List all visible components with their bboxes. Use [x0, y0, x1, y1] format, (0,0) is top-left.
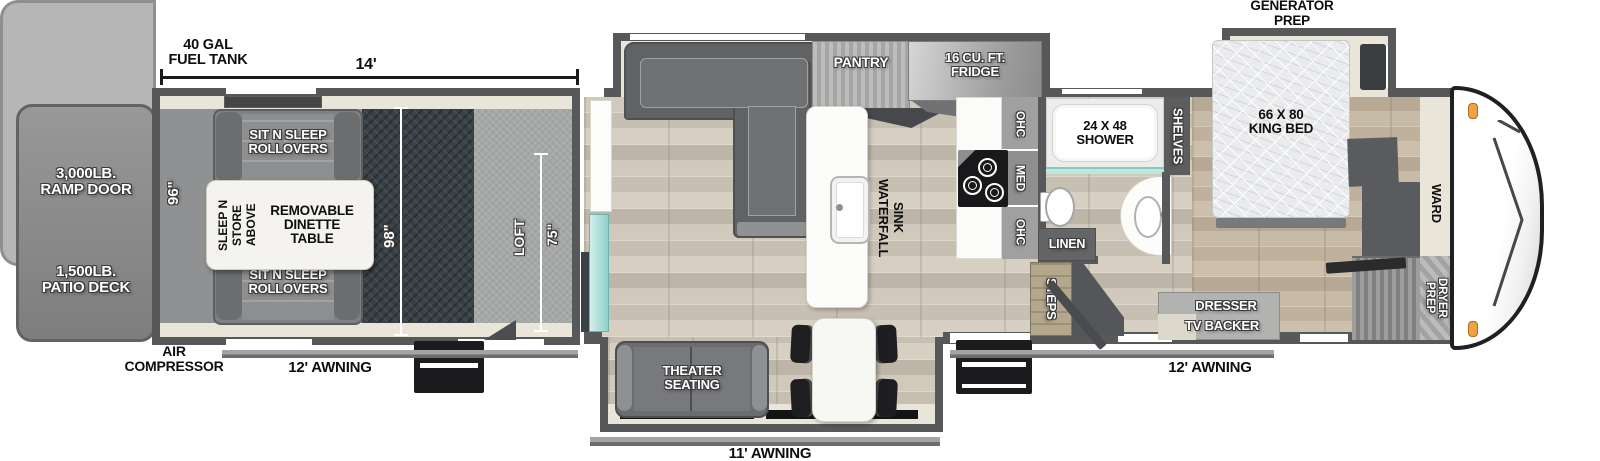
entry-steps-main-tread-2 [962, 384, 1026, 388]
king-bed-label: 66 X 80 KING BED [1222, 104, 1340, 140]
roof-vent [224, 96, 322, 108]
theater-slide-wall-right [935, 337, 943, 432]
fuel-tank-label: 40 GAL FUEL TANK [148, 36, 268, 70]
garage-carpet [362, 96, 474, 337]
dresser-label-2: TV BACKER [1164, 317, 1280, 334]
bottom-wall-window-2 [1300, 334, 1348, 342]
wd-line3: PREP [1424, 258, 1436, 338]
fuel-tank-line2: FUEL TANK [168, 53, 247, 68]
ramp-door-label: 3,000LB. RAMP DOOR [18, 160, 154, 204]
bed-base [1216, 218, 1346, 228]
dinette-line2: DINETTE [284, 218, 340, 232]
dim75-line [540, 154, 542, 332]
garage-passage-dark [581, 252, 589, 332]
loft-label: LOFT [511, 214, 529, 262]
sofa-slide-wall-left [613, 33, 621, 97]
sleep-n-store-line1: SLEEP N STORE [216, 178, 244, 272]
vanity-sink [1134, 196, 1162, 238]
awning-left-label: 12' AWNING [268, 360, 392, 376]
waterfall-sink-label: WATERFALL SINK [876, 168, 910, 268]
burner-icon [978, 158, 997, 177]
burner-icon [985, 183, 1004, 202]
linen-label: LINEN [1049, 238, 1086, 251]
fridge-line2: FRIDGE [951, 65, 999, 79]
sectional-sofa-back-seat [640, 58, 808, 108]
bed-slide-window-right [1360, 44, 1386, 90]
bed-slide-wall-top [1222, 28, 1396, 36]
dim98-cap-top [394, 107, 408, 109]
fridge-line1: 16 CU. FT. [945, 51, 1005, 65]
ward-panel-lower [1362, 182, 1420, 256]
garage-top-window [226, 88, 316, 94]
shelves-label: SHELVES [1164, 99, 1190, 173]
entry-steps-main-tread-1 [962, 362, 1026, 367]
air-compressor-line1: AIR [162, 344, 186, 359]
dinette-line1: REMOVABLE [270, 204, 353, 218]
toilet-bowl [1045, 187, 1075, 227]
garage-bottom-window-1 [226, 339, 312, 345]
sofa-slide-window [630, 34, 805, 40]
bath-wall-right [1162, 172, 1170, 264]
entry-steps-garage-tread [420, 363, 478, 368]
shower-glass [1046, 167, 1164, 174]
clearance-light-bottom-icon [1468, 321, 1478, 337]
burner-icon [963, 176, 982, 195]
sofa-slide-wall-right [1042, 33, 1050, 97]
rollover-top-line1: SIT N SLEEP [249, 128, 326, 142]
patio-deck-label: 1,500LB. PATIO DECK [18, 258, 154, 302]
dim-tick-left [160, 69, 163, 85]
sectional-sofa-foot [737, 222, 807, 236]
dim98-cap-bottom [394, 334, 408, 336]
theater-line1: THEATER [662, 364, 721, 378]
theater-slide-wall-left [600, 337, 608, 432]
floorplan-canvas: 3,000LB. RAMP DOOR 1,500LB. PATIO DECK 4… [0, 0, 1600, 461]
top-wall-front [1390, 88, 1454, 97]
dim75-cap-top [534, 153, 548, 155]
glass-partition [589, 214, 609, 332]
bed-line2: KING BED [1249, 122, 1313, 136]
bed-slide-wall-right [1388, 28, 1396, 97]
dining-chair [790, 324, 814, 363]
patio-deck-line2: PATIO DECK [42, 280, 130, 296]
rollover-bottom-line1: SIT N SLEEP [249, 268, 326, 282]
dinette-line3: TABLE [291, 232, 334, 246]
ramp-door-line1: 3,000LB. [56, 166, 116, 182]
cooktop [958, 150, 1008, 207]
fridge-label: 16 CU. FT. FRIDGE [910, 48, 1040, 82]
theater-seating-label: THEATER SEATING [620, 360, 764, 396]
dresser-label-1: DRESSER [1172, 297, 1280, 314]
ramp-door [16, 104, 156, 342]
entry-cabinet [590, 100, 612, 212]
awning-bar-right [950, 350, 1274, 358]
rollover-bottom-line2: ROLLOVERS [248, 282, 327, 296]
rollover-top-label: SIT N SLEEP ROLLOVERS [210, 126, 366, 158]
air-compressor-label: AIR COMPRESSOR [122, 343, 226, 375]
sink-drain [836, 204, 843, 211]
ohc-top-label: OHC [1002, 101, 1038, 147]
loft-dim: 75" [544, 214, 562, 256]
dining-chair [874, 378, 898, 417]
wd-line2: DRYER [1436, 258, 1448, 338]
sink-line1: WATERFALL [876, 168, 891, 268]
theater-slide-wall-bottom [600, 424, 943, 432]
ramp-door-line2: RAMP DOOR [40, 182, 131, 198]
fuel-tank-line1: 40 GAL [183, 38, 233, 53]
front-cap-accent-icon [1488, 120, 1538, 320]
waterfall-sink [830, 176, 870, 244]
shower-line2: SHOWER [1076, 133, 1133, 147]
awning-bottom-label: 11' AWNING [690, 446, 850, 461]
top-wall-window [1062, 89, 1142, 94]
garage-length-dim-line [161, 76, 578, 79]
garage-length-98-dim: 98" [381, 214, 399, 258]
generator-prep-line2: PREP [1274, 14, 1310, 28]
generator-prep-line1: GENERATOR [1250, 0, 1333, 14]
air-compressor-line2: COMPRESSOR [124, 359, 223, 374]
awning-right-label: 12' AWNING [1138, 360, 1282, 376]
pantry-label: PANTRY [812, 52, 910, 72]
dining-table [812, 318, 876, 422]
shower-line1: 24 X 48 [1083, 119, 1126, 133]
sectional-sofa-arm-seat [748, 106, 796, 216]
linen-cabinet: LINEN [1038, 228, 1096, 261]
sleep-n-store-label: SLEEP N STORE ABOVE [216, 178, 250, 272]
clearance-light-top-icon [1468, 103, 1478, 119]
dinette-label: REMOVABLE DINETTE TABLE [252, 196, 372, 254]
dining-chair [790, 378, 814, 417]
theater-line2: SEATING [664, 378, 719, 392]
sink-line2: SINK [891, 168, 906, 268]
garage-length-dim-label: 14' [336, 56, 396, 74]
rollover-top-line2: ROLLOVERS [248, 142, 327, 156]
dim98-line [400, 108, 402, 336]
bed-line1: 66 X 80 [1258, 108, 1303, 122]
dim75-cap-bottom [534, 330, 548, 332]
dining-chair [874, 324, 898, 363]
ward-label: WARD [1426, 178, 1446, 228]
garage-top-trim [160, 96, 572, 109]
generator-prep-label: GENERATOR PREP [1242, 0, 1342, 27]
awning-bar-left [222, 350, 578, 358]
dim-tick-right [576, 69, 579, 85]
shower-label: 24 X 48 SHOWER [1050, 116, 1160, 150]
ward-panel-upper [1347, 137, 1399, 187]
garage-width-dim: 96" [165, 170, 185, 216]
ohc-bottom-label: OHC [1002, 209, 1038, 255]
patio-deck-line1: 1,500LB. [56, 264, 116, 280]
